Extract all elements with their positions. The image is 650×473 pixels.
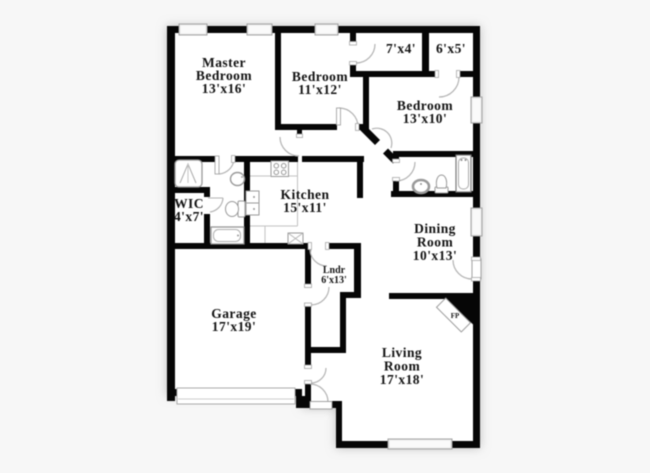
svg-text:6'x5': 6'x5' <box>436 41 466 56</box>
svg-text:FP: FP <box>451 312 460 320</box>
svg-text:Garage17'x19': Garage17'x19' <box>211 306 256 334</box>
svg-text:Lndr6'x13': Lndr6'x13' <box>321 265 347 286</box>
svg-text:LivingRoom17'x18': LivingRoom17'x18' <box>380 345 424 387</box>
svg-text:DiningRoom10'x13': DiningRoom10'x13' <box>413 221 457 263</box>
svg-text:WIC4'x7': WIC4'x7' <box>174 196 204 224</box>
svg-text:Bedroom11'x12': Bedroom11'x12' <box>292 69 348 97</box>
svg-text:7'x4': 7'x4' <box>386 41 416 56</box>
svg-text:Bedroom13'x10': Bedroom13'x10' <box>397 98 453 126</box>
svg-text:MasterBedroom13'x16': MasterBedroom13'x16' <box>196 55 252 96</box>
svg-text:Kitchen15'x11': Kitchen15'x11' <box>281 187 330 215</box>
